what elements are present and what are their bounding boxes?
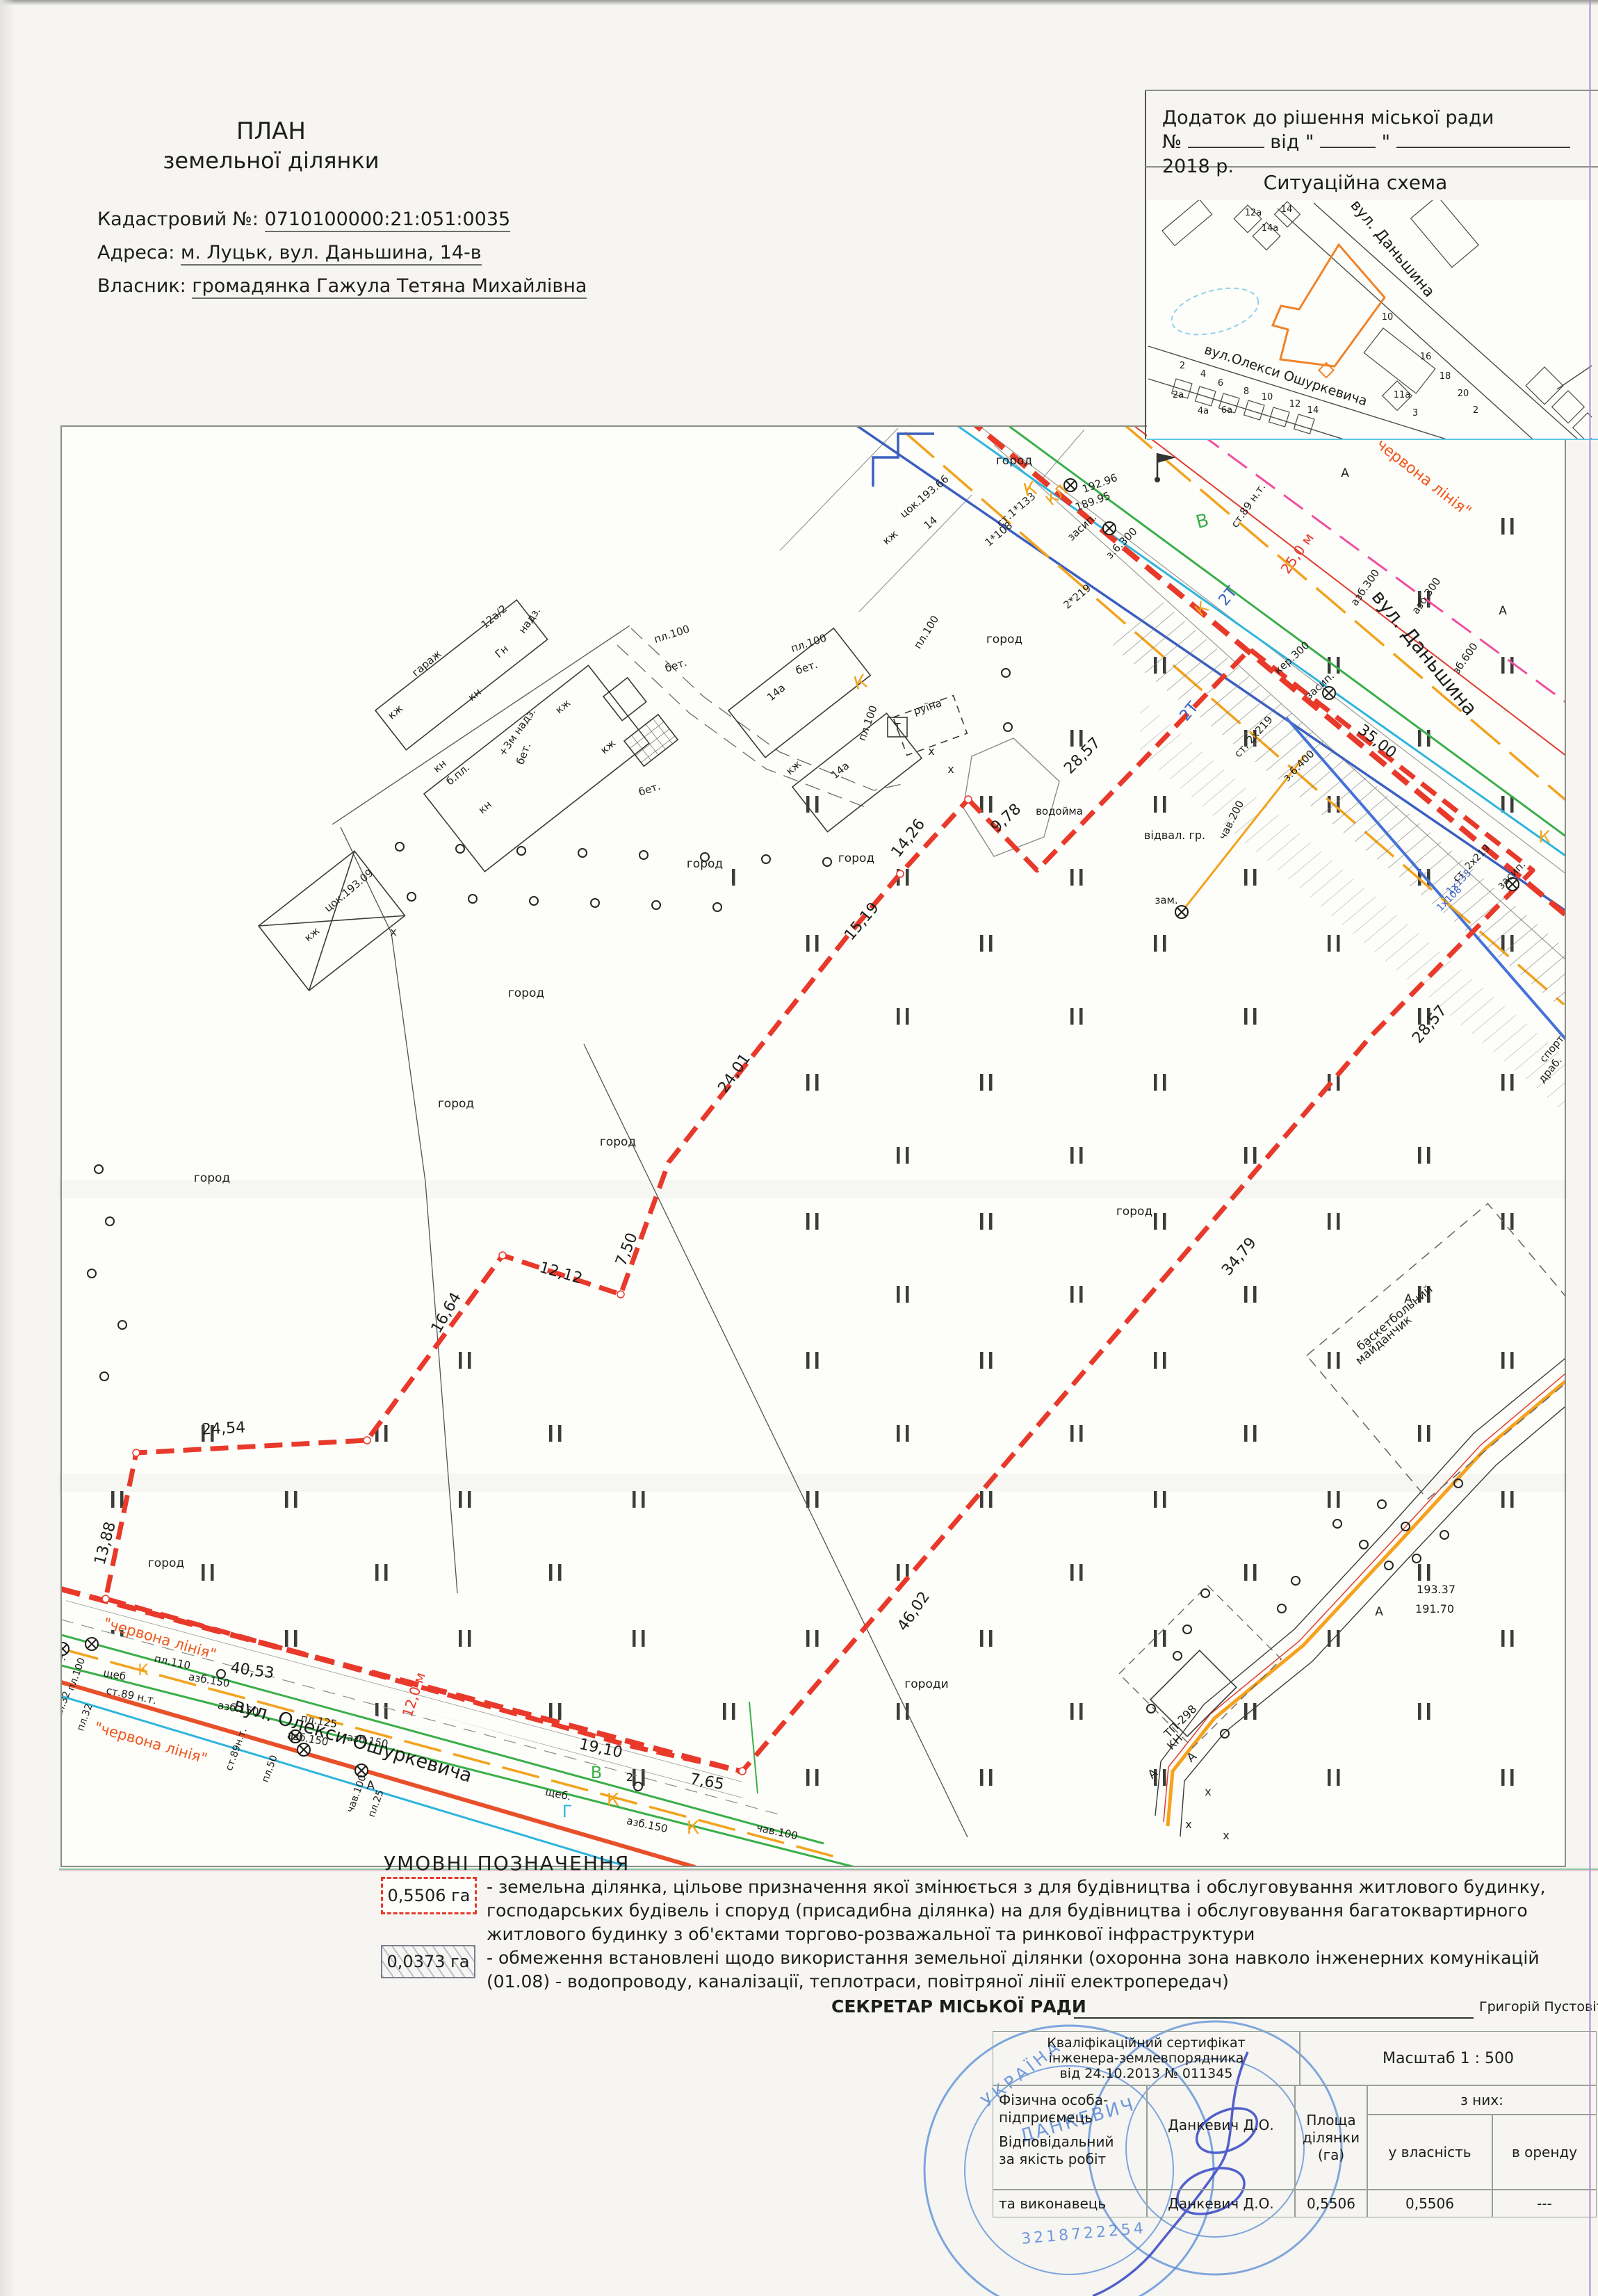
map-label: 191.70 — [1415, 1602, 1454, 1615]
x-mark: х — [1185, 1818, 1191, 1831]
name1-cell: Данкевич Д.О. — [1147, 2085, 1295, 2190]
boundary-vertex — [965, 796, 972, 803]
secretary-signature-line — [1074, 2017, 1474, 2019]
area-header-line: Площа — [1296, 2112, 1367, 2129]
map-label: водойма — [1036, 805, 1083, 817]
cert-line-3: від 24.10.2013 № 011345 — [993, 2066, 1299, 2081]
title-line-2: земельної ділянки — [104, 147, 438, 174]
scan-band — [59, 1474, 1567, 1492]
legend-text-1: - земельна ділянка, цільове призначення … — [487, 1875, 1593, 1946]
document-title: ПЛАН земельної ділянки — [104, 117, 438, 174]
scan-band — [59, 1180, 1567, 1198]
schema-house-number: 4а — [1198, 406, 1209, 416]
own-value-cell: 0,5506 — [1367, 2190, 1492, 2217]
schema-title: Ситуаційна схема — [1147, 171, 1564, 194]
own-header-cell: у власність — [1367, 2115, 1492, 2190]
schema-house-number: 6а — [1221, 405, 1232, 416]
map-label: город — [986, 633, 1022, 646]
map-label: город — [600, 1135, 636, 1149]
map-label: 193.37 — [1417, 1583, 1456, 1596]
schema-house-number: 3 — [1412, 408, 1418, 418]
x-mark: х — [1223, 1829, 1229, 1842]
area-header-cell: Площа ділянки (га) — [1295, 2085, 1367, 2190]
scale-cell: Масштаб 1 : 500 — [1300, 2031, 1597, 2085]
map-label: город — [687, 857, 723, 871]
legend-value-2: 0,0373 га — [387, 1952, 470, 1971]
boundary-vertex — [617, 1291, 624, 1298]
x-mark: х — [947, 763, 954, 776]
cadastral-value: 0710100000:21:051:0035 — [265, 209, 511, 232]
scan-edge-top — [0, 0, 1598, 6]
schema-house-number: 10 — [1262, 392, 1273, 402]
x-mark: х — [928, 744, 934, 758]
appendix-day-blank — [1320, 131, 1376, 148]
rent-value-cell: --- — [1492, 2190, 1597, 2217]
map-label: город — [438, 1097, 474, 1111]
map-label: город — [508, 986, 544, 1000]
appendix-quote: " — [1382, 131, 1390, 153]
secretary-label: СЕКРЕТАР МІСЬКОЇ РАДИ — [831, 1996, 1086, 2017]
map-label: К — [687, 1818, 699, 1839]
boundary-vertex — [133, 1449, 140, 1456]
map-label: К — [1538, 827, 1550, 847]
map-label: город — [148, 1556, 184, 1570]
schema-house-number: 2 — [1180, 361, 1185, 371]
scanned-land-plan-page: хххххх "червона лінія"вул. Даньшина25,0 … — [0, 0, 1598, 2296]
appendix-block: Додаток до рішення міської ради № від " … — [1162, 106, 1593, 179]
owner-value: громадянка Гажула Тетяна Михайлівна — [192, 275, 587, 299]
secretary-name: Григорій Пустовіт — [1479, 1999, 1598, 2014]
map-label: город — [996, 454, 1032, 468]
appendix-month-blank — [1396, 131, 1570, 148]
map-label: Т — [893, 721, 901, 733]
boundary-vertex — [102, 1595, 109, 1602]
boundary-vertex — [499, 1252, 506, 1259]
schema-house-number: 2а — [1173, 390, 1184, 400]
boundary-vertex — [364, 1437, 370, 1444]
cert-cell: Кваліфікаційний сертифікат інженера-земл… — [993, 2031, 1300, 2085]
map-label: Г — [562, 1802, 573, 1821]
appendix-vid-label: від " — [1270, 131, 1314, 153]
name2-cell: Данкевич Д.О. — [1147, 2190, 1295, 2217]
schema-house-number: 18 — [1440, 371, 1451, 382]
schema-house-number: 20 — [1458, 389, 1469, 399]
cadastral-label: Кадастровий №: — [97, 209, 259, 230]
schema-house-number: 4 — [1200, 369, 1206, 380]
schema-house-number: 10 — [1382, 312, 1394, 323]
map-label: А — [366, 1779, 375, 1793]
appendix-line-1: Додаток до рішення міської ради — [1162, 106, 1593, 130]
legend-symbol-restriction: 0,0373 га — [381, 1945, 475, 1978]
map-label: К — [138, 1662, 149, 1679]
schema-house-number: 8 — [1244, 386, 1249, 397]
title-line-1: ПЛАН — [104, 117, 438, 147]
map-label: А — [1375, 1605, 1383, 1619]
map-label: город — [1116, 1205, 1152, 1219]
scan-edge-left — [0, 0, 15, 2296]
legend-value-1: 0,5506 га — [388, 1886, 471, 1905]
map-label: відвал. гр. — [1144, 829, 1205, 842]
person-line: Фізична особа- — [999, 2092, 1108, 2109]
appendix-no-blank — [1188, 131, 1264, 148]
map-label: 24,54 — [202, 1419, 246, 1438]
cert-line-1: Кваліфікаційний сертифікат — [993, 2035, 1299, 2051]
schema-house-number: 12 — [1289, 399, 1301, 409]
area-header-line: ділянки — [1296, 2129, 1367, 2147]
map-label: К — [607, 1790, 619, 1811]
map-label: А — [1404, 1292, 1412, 1306]
schema-house-number: 14 — [1307, 405, 1319, 416]
boundary-vertex — [739, 1768, 746, 1775]
owner-row: Власник: громадянка Гажула Тетяна Михайл… — [97, 275, 587, 297]
address-value: м. Луцьк, вул. Даньшина, 14-в — [181, 242, 482, 266]
legend-symbol-plot: 0,5506 га — [381, 1877, 477, 1914]
owner-label: Власник: — [97, 275, 186, 297]
map-label: 2 — [626, 1770, 633, 1784]
x-mark: х — [1205, 1785, 1211, 1798]
map-label: зам. — [1155, 894, 1177, 906]
legend-title: УМОВНІ ПОЗНАЧЕННЯ — [384, 1852, 630, 1875]
person-line: за якість робіт — [999, 2151, 1106, 2168]
person-line: підприємець — [999, 2109, 1093, 2126]
schema-house-number: 14а — [1262, 223, 1279, 234]
appendix-no-label: № — [1162, 131, 1182, 153]
area-value-cell: 0,5506 — [1295, 2190, 1367, 2217]
schema-house-number: 2 — [1473, 405, 1478, 416]
schema-house-number: 12а — [1245, 208, 1262, 218]
main-map: хххххх "червона лінія"вул. Даньшина25,0 … — [33, 351, 1598, 1867]
x-mark: х — [390, 925, 396, 938]
rent-header-cell: в оренду — [1492, 2115, 1597, 2190]
znyh-cell: з них: — [1367, 2085, 1597, 2115]
map-label: городи — [904, 1677, 948, 1691]
area-header-line: (га) — [1296, 2147, 1367, 2164]
address-row: Адреса: м. Луцьк, вул. Даньшина, 14-в — [97, 242, 482, 263]
schema-house-number: 6 — [1218, 378, 1223, 389]
stamp-code-text: 3218722254 — [1020, 2220, 1146, 2248]
scan-edge-right-line — [1589, 0, 1591, 2296]
boundary-vertex — [897, 870, 904, 877]
legend-text-2: - обмеження встановлені щодо використанн… — [487, 1946, 1593, 1994]
schema-house-number: 11а — [1394, 390, 1411, 400]
executor-cell: та виконавець — [993, 2190, 1147, 2217]
cadastral-row: Кадастровий №: 0710100000:21:051:0035 — [97, 209, 510, 230]
map-label: А — [1499, 604, 1507, 618]
person-cell: Фізична особа- підприємець Відповідальни… — [993, 2085, 1147, 2190]
person-line: Відповідальний — [999, 2133, 1114, 2151]
address-label: Адреса: — [97, 242, 174, 263]
cert-line-2: інженера-землевпорядника — [993, 2051, 1299, 2066]
map-label: В — [591, 1763, 602, 1782]
schema-house-number: 16 — [1420, 352, 1432, 362]
schema-house-number: 14 — [1281, 204, 1293, 215]
map-label: город — [838, 852, 874, 865]
map-label: А — [1341, 466, 1349, 480]
